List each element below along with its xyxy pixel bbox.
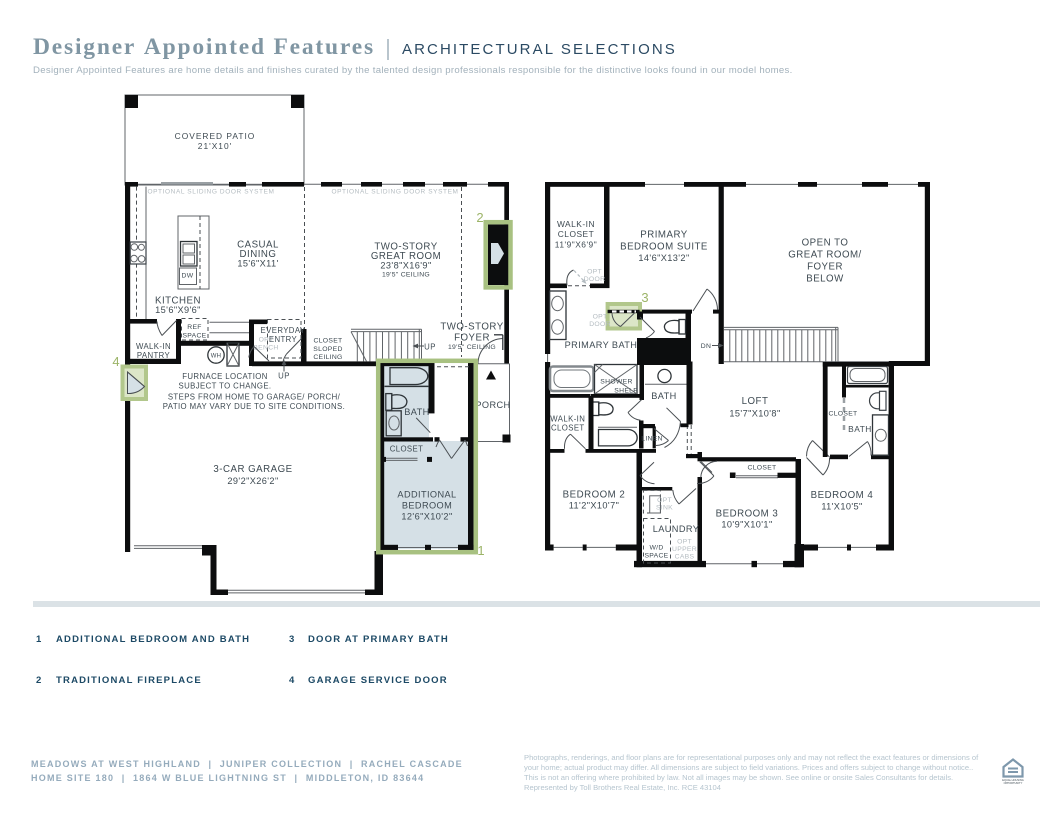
svg-text:BEDROOM SUITE: BEDROOM SUITE: [620, 242, 708, 253]
svg-text:UPPER: UPPER: [672, 546, 697, 553]
svg-text:BEDROOM 4: BEDROOM 4: [811, 490, 874, 501]
svg-text:OPT: OPT: [587, 269, 602, 276]
svg-text:LAUNDRY: LAUNDRY: [653, 524, 700, 534]
svg-text:OPTIONAL SLIDING DOOR SYSTEM: OPTIONAL SLIDING DOOR SYSTEM: [147, 189, 274, 196]
svg-text:SLOPED: SLOPED: [313, 346, 342, 353]
svg-text:DW: DW: [182, 273, 194, 280]
svg-text:WH: WH: [211, 354, 221, 360]
svg-text:BEDROOM: BEDROOM: [402, 501, 452, 511]
svg-text:WALK-IN: WALK-IN: [557, 219, 595, 229]
svg-text:WALK-IN: WALK-IN: [550, 415, 585, 424]
svg-text:PORCH: PORCH: [475, 400, 510, 410]
svg-text:REF: REF: [187, 324, 202, 331]
svg-text:SHOWER: SHOWER: [600, 379, 632, 386]
svg-text:21'X10': 21'X10': [198, 141, 232, 151]
svg-text:OPPORTUNITY: OPPORTUNITY: [1004, 781, 1023, 785]
svg-text:UP: UP: [424, 343, 436, 352]
svg-text:PATIO MAY VARY DUE TO SITE CON: PATIO MAY VARY DUE TO SITE CONDITIONS.: [163, 402, 345, 411]
svg-text:15'6"X9'6": 15'6"X9'6": [155, 305, 201, 315]
svg-text:BEDROOM 2: BEDROOM 2: [563, 490, 626, 501]
svg-text:STEPS FROM HOME TO GARAGE/ POR: STEPS FROM HOME TO GARAGE/ PORCH/: [168, 393, 341, 402]
svg-text:WALK-IN: WALK-IN: [136, 342, 171, 351]
svg-text:11'X10'5": 11'X10'5": [821, 502, 862, 512]
svg-text:BELOW: BELOW: [806, 274, 844, 285]
svg-text:1: 1: [477, 543, 484, 558]
svg-text:OPT: OPT: [259, 337, 274, 344]
svg-text:CLOSET: CLOSET: [314, 338, 343, 345]
svg-text:SHELF: SHELF: [614, 387, 637, 394]
svg-text:CABS: CABS: [675, 554, 695, 561]
svg-text:CLOSET: CLOSET: [551, 424, 585, 433]
svg-text:15'6"X11': 15'6"X11': [237, 259, 278, 269]
svg-text:PANTRY: PANTRY: [137, 351, 171, 360]
svg-text:4: 4: [112, 354, 119, 369]
svg-text:19'5" CEILING: 19'5" CEILING: [448, 344, 496, 351]
svg-text:BATH: BATH: [651, 391, 676, 401]
svg-text:FOYER: FOYER: [807, 262, 843, 273]
svg-text:LOFT: LOFT: [742, 396, 769, 407]
svg-text:FURNACE LOCATION: FURNACE LOCATION: [182, 372, 268, 381]
svg-text:CEILING: CEILING: [313, 354, 342, 361]
svg-text:SPACE: SPACE: [182, 333, 206, 340]
svg-text:11'2"X10'7": 11'2"X10'7": [569, 501, 620, 511]
svg-text:OPT: OPT: [657, 497, 672, 504]
svg-text:23'8"X16'9": 23'8"X16'9": [380, 260, 431, 270]
svg-text:SUBJECT TO CHANGE.: SUBJECT TO CHANGE.: [179, 382, 272, 391]
svg-text:BATH: BATH: [848, 424, 872, 434]
svg-text:2: 2: [476, 210, 483, 225]
svg-text:14'6"X13'2": 14'6"X13'2": [638, 253, 689, 263]
svg-text:DOOR: DOOR: [589, 321, 611, 328]
svg-text:W/D: W/D: [649, 545, 663, 552]
svg-text:OPT: OPT: [677, 539, 692, 546]
svg-text:OPT: OPT: [593, 314, 608, 321]
svg-text:PRIMARY: PRIMARY: [640, 230, 688, 241]
svg-text:CLOSET: CLOSET: [390, 445, 424, 454]
svg-text:DOOR: DOOR: [584, 276, 606, 283]
svg-text:BATH: BATH: [404, 407, 429, 417]
svg-text:SINK: SINK: [656, 505, 673, 512]
svg-text:15'7"X10'8": 15'7"X10'8": [729, 409, 780, 419]
svg-text:10'9"X10'1": 10'9"X10'1": [721, 520, 772, 530]
svg-text:12'6"X10'2": 12'6"X10'2": [401, 512, 452, 522]
svg-text:OPTIONAL SLIDING DOOR SYSTEM: OPTIONAL SLIDING DOOR SYSTEM: [331, 189, 458, 196]
svg-text:29'2"X26'2": 29'2"X26'2": [227, 476, 278, 486]
svg-text:COVERED PATIO: COVERED PATIO: [175, 131, 256, 141]
svg-text:SPACE: SPACE: [644, 553, 668, 560]
svg-text:ADDITIONAL: ADDITIONAL: [397, 490, 456, 500]
svg-text:FOYER: FOYER: [454, 333, 490, 344]
svg-text:BEDROOM 3: BEDROOM 3: [716, 509, 779, 520]
svg-text:BENCH: BENCH: [253, 345, 278, 352]
svg-text:PRIMARY BATH: PRIMARY BATH: [565, 340, 638, 350]
svg-text:LINEN: LINEN: [641, 436, 663, 443]
svg-text:11'9"X6'9": 11'9"X6'9": [555, 240, 597, 250]
svg-text:CLOSET: CLOSET: [829, 411, 858, 418]
svg-text:TWO-STORY: TWO-STORY: [440, 322, 503, 333]
svg-text:3: 3: [641, 290, 648, 305]
svg-text:19'5" CEILING: 19'5" CEILING: [382, 271, 430, 278]
svg-text:DN: DN: [701, 343, 711, 350]
svg-text:GREAT ROOM/: GREAT ROOM/: [788, 250, 862, 261]
svg-text:3-CAR GARAGE: 3-CAR GARAGE: [213, 464, 292, 475]
svg-text:OPEN TO: OPEN TO: [802, 238, 849, 249]
svg-text:UP: UP: [278, 372, 290, 381]
svg-text:CLOSET: CLOSET: [748, 465, 777, 472]
svg-text:CLOSET: CLOSET: [558, 229, 595, 239]
